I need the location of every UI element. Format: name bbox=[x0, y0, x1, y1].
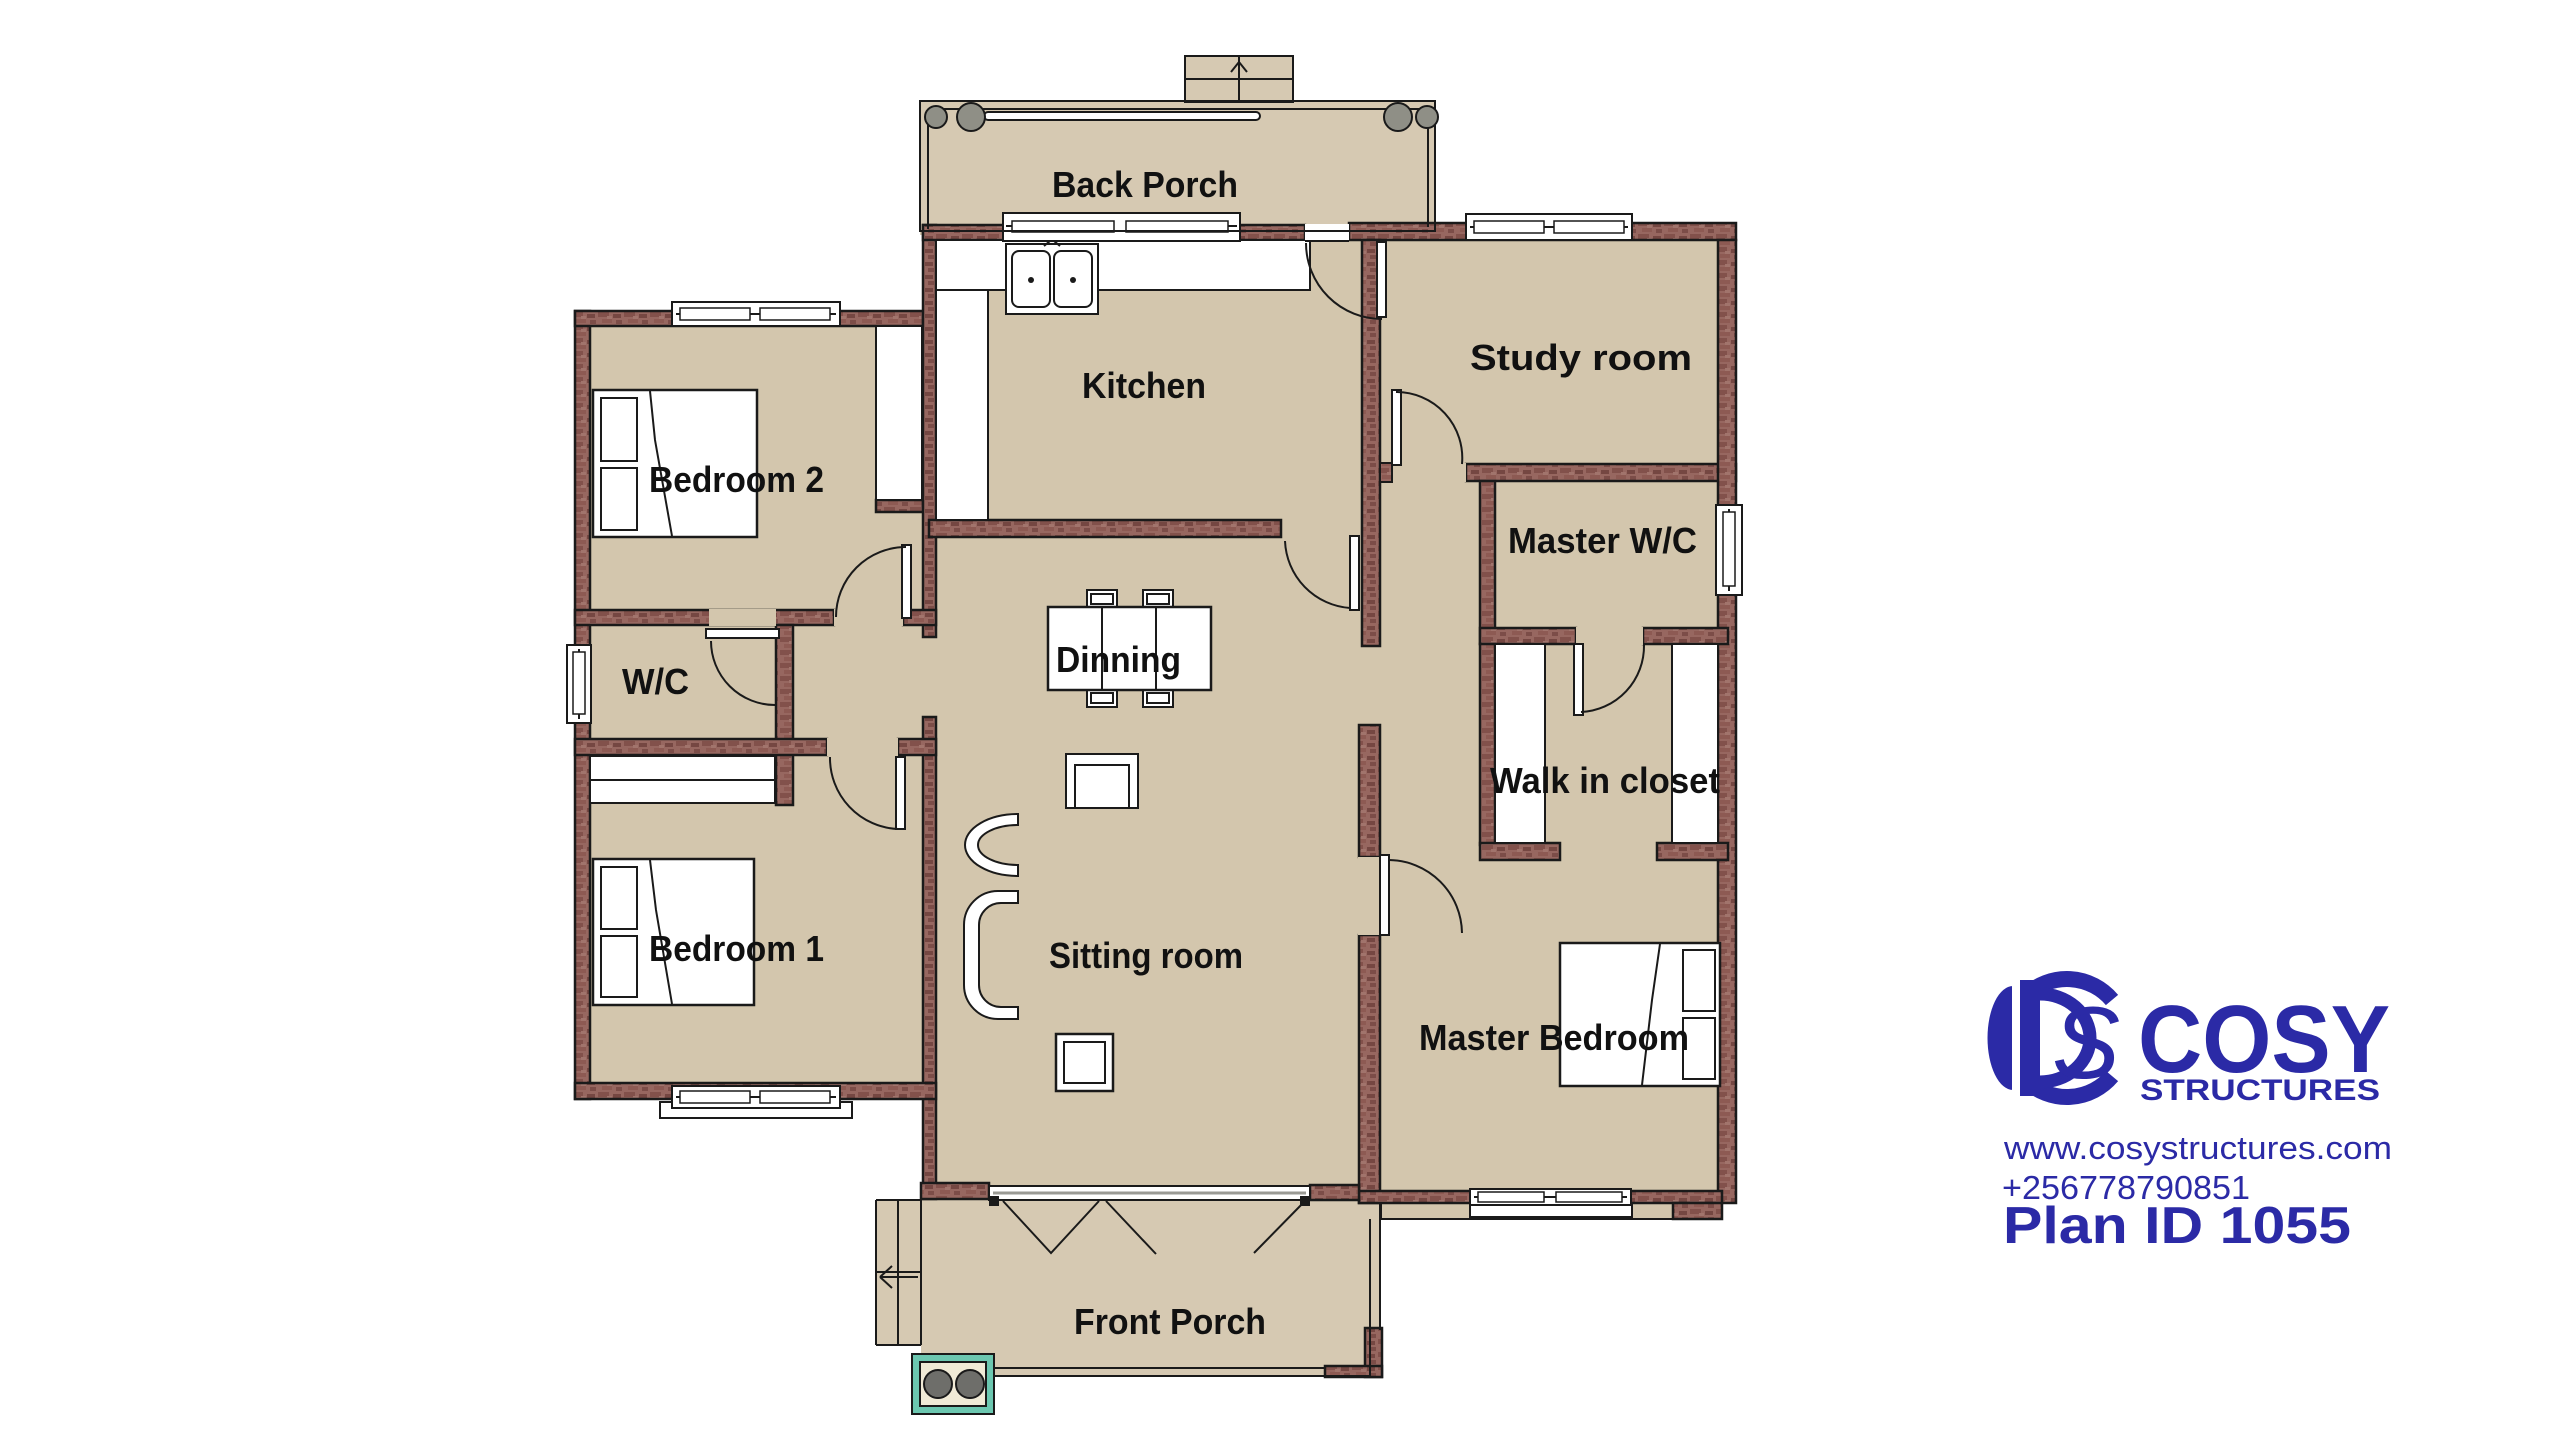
svg-text:S: S bbox=[2052, 986, 2120, 1100]
svg-text:Sitting room: Sitting room bbox=[1049, 935, 1243, 976]
svg-text:W/C: W/C bbox=[622, 661, 689, 702]
svg-text:Bedroom 1: Bedroom 1 bbox=[649, 928, 824, 969]
svg-text:Front Porch: Front Porch bbox=[1074, 1301, 1266, 1342]
svg-text:STRUCTURES: STRUCTURES bbox=[2140, 1074, 2380, 1107]
svg-text:Bedroom 2: Bedroom 2 bbox=[649, 459, 824, 500]
svg-text:Kitchen: Kitchen bbox=[1082, 365, 1206, 406]
svg-text:Back Porch: Back Porch bbox=[1052, 164, 1238, 205]
svg-text:Master Bedroom: Master Bedroom bbox=[1419, 1017, 1689, 1058]
svg-text:Plan ID 1055: Plan ID 1055 bbox=[2003, 1197, 2351, 1255]
svg-text:www.cosystructures.com: www.cosystructures.com bbox=[2003, 1130, 2392, 1166]
svg-text:Dinning: Dinning bbox=[1056, 639, 1181, 680]
svg-text:Walk in closet: Walk in closet bbox=[1490, 760, 1720, 801]
svg-text:Master W/C: Master W/C bbox=[1508, 520, 1697, 561]
svg-text:Study room: Study room bbox=[1470, 337, 1692, 378]
